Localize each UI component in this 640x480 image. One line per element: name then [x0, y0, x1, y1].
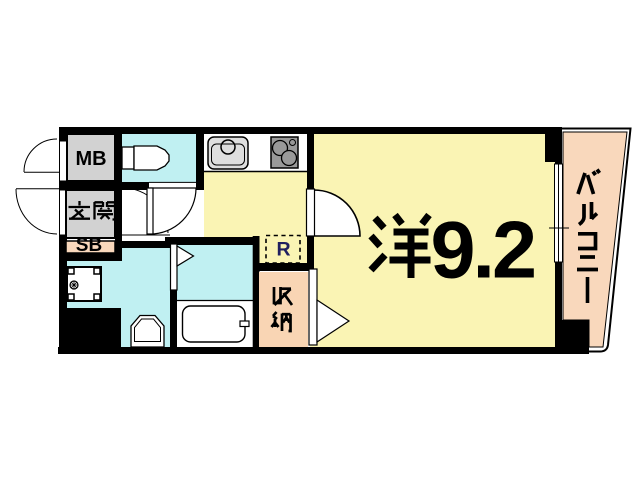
svg-text:R: R [276, 239, 290, 261]
svg-text:9.2: 9.2 [431, 206, 535, 296]
svg-text:MB: MB [75, 148, 106, 170]
svg-text:SB: SB [76, 235, 102, 256]
